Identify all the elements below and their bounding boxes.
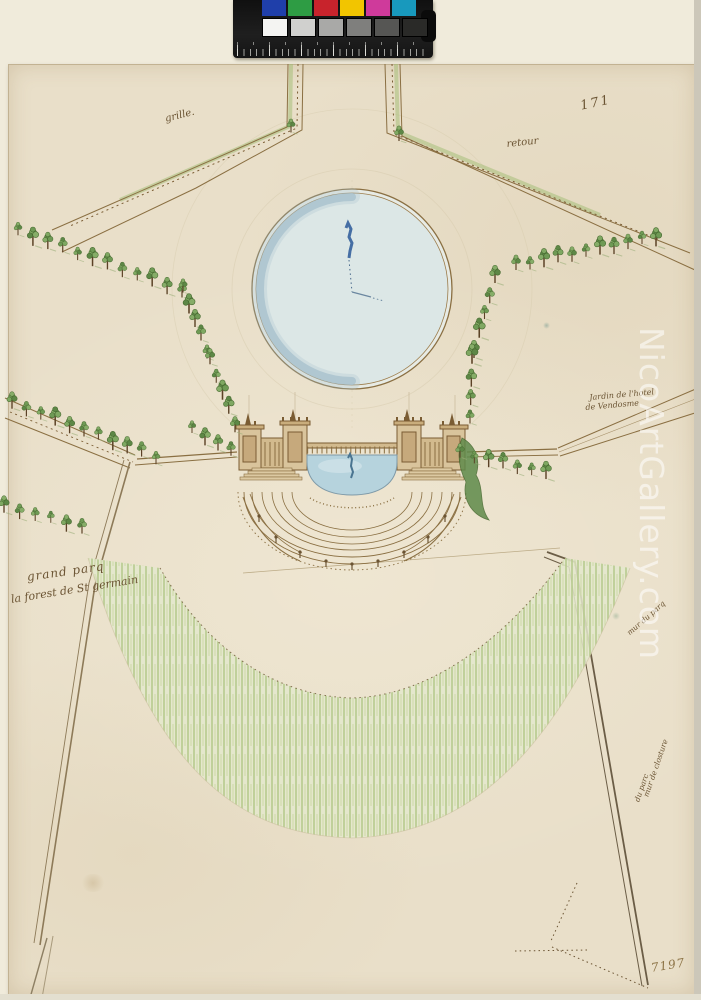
tree [541,461,555,481]
calibration-swatch [374,18,400,37]
tree [80,421,92,438]
tree [27,227,42,248]
tree [650,228,665,249]
avenue-left [52,64,303,252]
stair-posts [257,514,446,570]
tree [50,407,65,428]
tree [466,410,477,425]
gray-swatches [262,18,428,37]
calibration-swatch [314,0,338,16]
calibration-swatch [262,18,288,37]
tree [213,434,226,452]
tree [227,441,238,457]
tree [65,416,78,435]
tree [473,318,489,340]
park-wall-left [30,460,130,998]
calibration-swatch [402,18,428,37]
tree [466,389,478,407]
tree [483,449,497,469]
calibration-swatch [366,0,390,16]
tree [582,244,592,259]
calibration-swatch [346,18,372,37]
tree [102,252,115,271]
tree [43,232,56,251]
tree [133,267,143,282]
tree [77,518,89,535]
tree [107,431,122,452]
tree [61,515,74,534]
tree [528,463,538,477]
tree [609,237,622,256]
tree [624,234,636,251]
tree [568,247,580,264]
tree [538,248,553,269]
tree [553,245,566,264]
tree [137,442,149,459]
tree [87,247,102,268]
terrace-basin [307,454,397,508]
calibration-swatch [340,0,364,16]
calibration-swatch [392,0,416,16]
tree [31,507,42,522]
tree [14,222,24,237]
archive-photo-background: 171 grille. retour Jardin de l'hotel de … [0,0,701,1000]
survey-dotted-lines [515,883,648,988]
calibration-swatch [290,18,316,37]
calibration-swatch [262,0,286,16]
tree [466,369,480,389]
tree [37,406,47,421]
tree [490,265,504,285]
color-calibration-bar [233,0,433,58]
meadow-slope [88,558,630,838]
background-edge-bottom [0,994,701,1000]
tree [512,255,524,272]
tree [147,268,162,289]
calibration-swatch [288,0,312,16]
tree [7,392,20,411]
tree [15,504,27,521]
color-swatches [262,0,416,16]
tree [513,460,524,476]
tree [118,262,130,279]
tree [74,247,84,262]
tree [594,236,609,257]
tree [47,511,56,524]
round-pond [252,189,452,389]
tree [58,237,70,254]
tree [162,277,175,296]
garden-plan-drawing [0,0,701,1000]
ruler-scale [237,40,429,56]
background-edge-right [694,0,701,1000]
tree [485,287,497,305]
tree [223,396,237,416]
tree [498,452,511,470]
tree [0,496,12,515]
tree [200,427,214,447]
tree [480,305,491,320]
tree [179,279,190,294]
tree [188,421,198,435]
calibration-swatch [318,18,344,37]
